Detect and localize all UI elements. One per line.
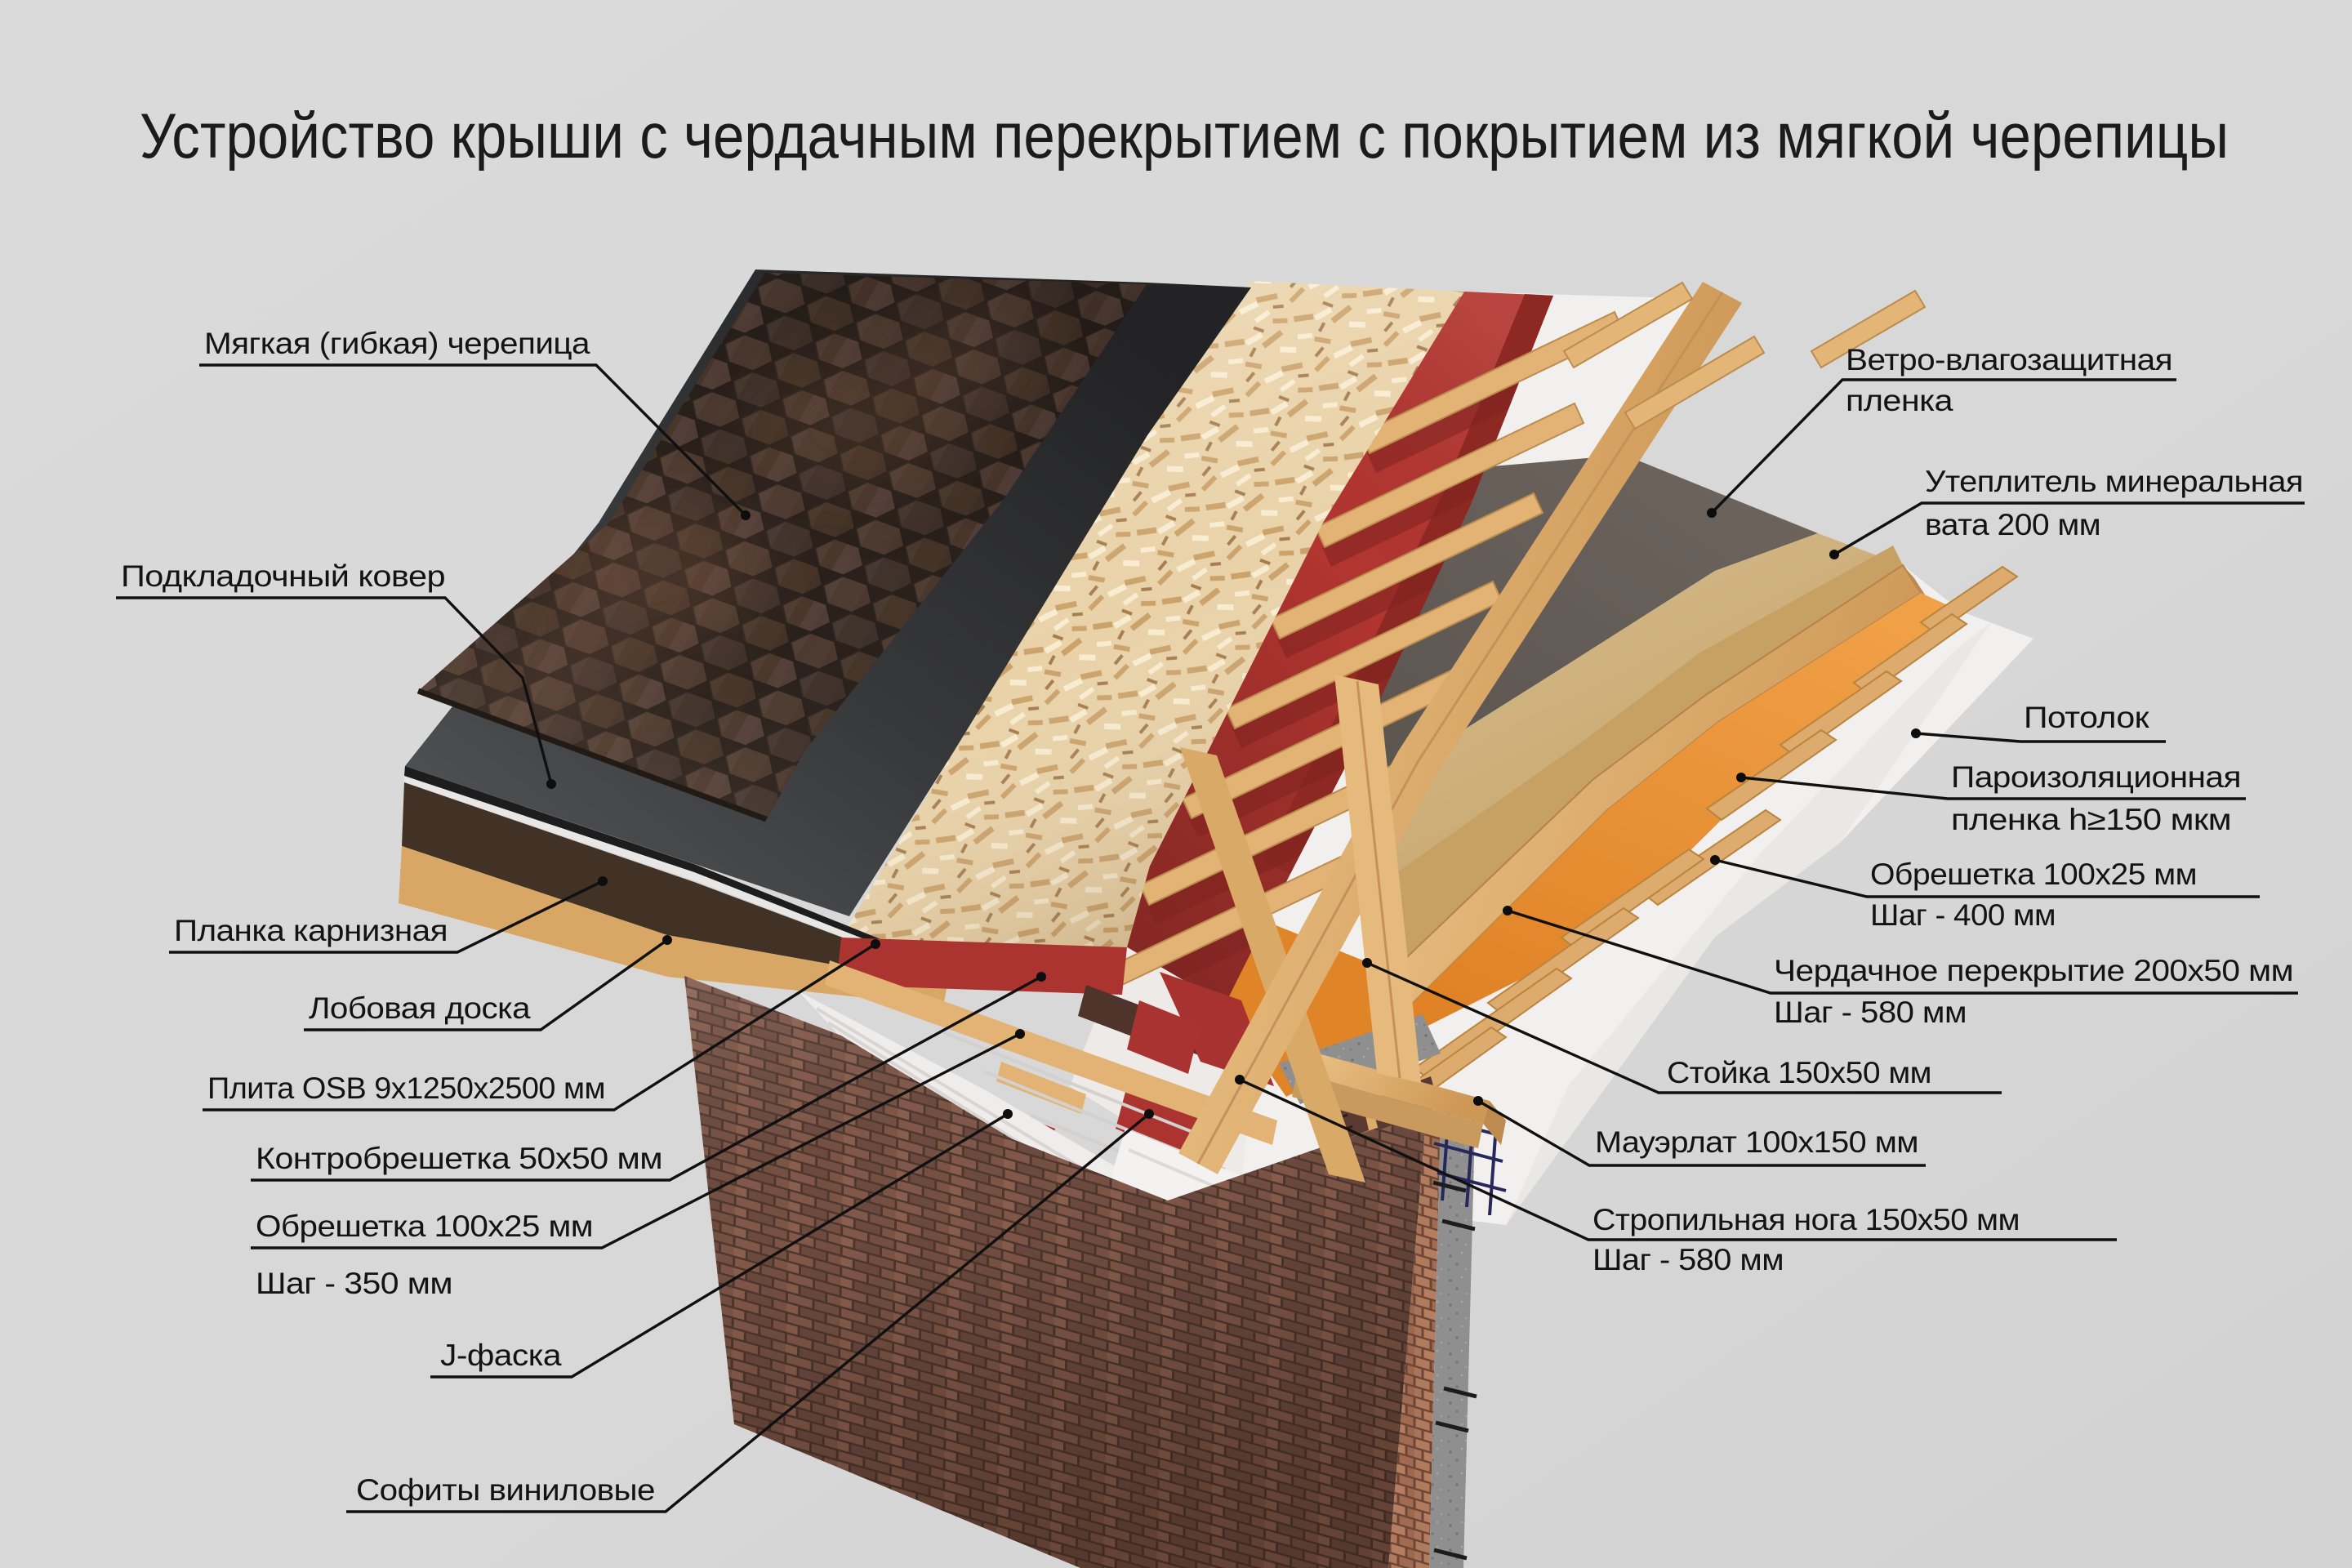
svg-text:Пароизоляционная: Пароизоляционная <box>1951 760 2241 794</box>
svg-text:пленка h≥150 мкм: пленка h≥150 мкм <box>1951 803 2231 836</box>
svg-text:Софиты виниловые: Софиты виниловые <box>356 1473 655 1507</box>
svg-text:Шаг - 580 мм: Шаг - 580 мм <box>1592 1243 1784 1276</box>
svg-text:Шаг - 400 мм: Шаг - 400 мм <box>1870 898 2056 932</box>
svg-text:Утеплитель минеральная: Утеплитель минеральная <box>1925 465 2303 498</box>
svg-text:Подкладочный ковер: Подкладочный ковер <box>121 559 445 593</box>
svg-text:Устройство крыши с чердачным п: Устройство крыши с чердачным перекрытием… <box>140 100 2229 171</box>
svg-text:Шаг - 350 мм: Шаг - 350 мм <box>256 1267 452 1300</box>
svg-text:пленка: пленка <box>1846 384 1953 417</box>
svg-text:Ветро-влагозащитная: Ветро-влагозащитная <box>1846 343 2172 376</box>
svg-text:Плита OSB 9х1250х2500 мм: Плита OSB 9х1250х2500 мм <box>207 1071 605 1105</box>
svg-text:Мягкая (гибкая) черепица: Мягкая (гибкая) черепица <box>204 327 590 360</box>
svg-text:Обрешетка 100х25 мм: Обрешетка 100х25 мм <box>256 1209 593 1243</box>
svg-text:Потолок: Потолок <box>2024 701 2149 734</box>
svg-text:Обрешетка 100х25 мм: Обрешетка 100х25 мм <box>1870 857 2197 891</box>
svg-text:Планка карнизная: Планка карнизная <box>174 914 448 947</box>
svg-text:J-фаска: J-фаска <box>440 1339 562 1372</box>
svg-text:вата 200 мм: вата 200 мм <box>1925 508 2100 541</box>
svg-text:Шаг - 580 мм: Шаг - 580 мм <box>1774 996 1967 1029</box>
svg-text:Чердачное перекрытие 200х50 мм: Чердачное перекрытие 200х50 мм <box>1774 954 2293 987</box>
svg-text:Стропильная нога 150х50 мм: Стропильная нога 150х50 мм <box>1592 1203 2020 1236</box>
svg-text:Контробрешетка 50х50 мм: Контробрешетка 50х50 мм <box>256 1142 662 1175</box>
svg-text:Мауэрлат 100х150 мм: Мауэрлат 100х150 мм <box>1595 1125 1918 1159</box>
svg-text:Стойка 150х50 мм: Стойка 150х50 мм <box>1667 1056 1931 1089</box>
svg-text:Лобовая доска: Лобовая доска <box>309 991 531 1025</box>
